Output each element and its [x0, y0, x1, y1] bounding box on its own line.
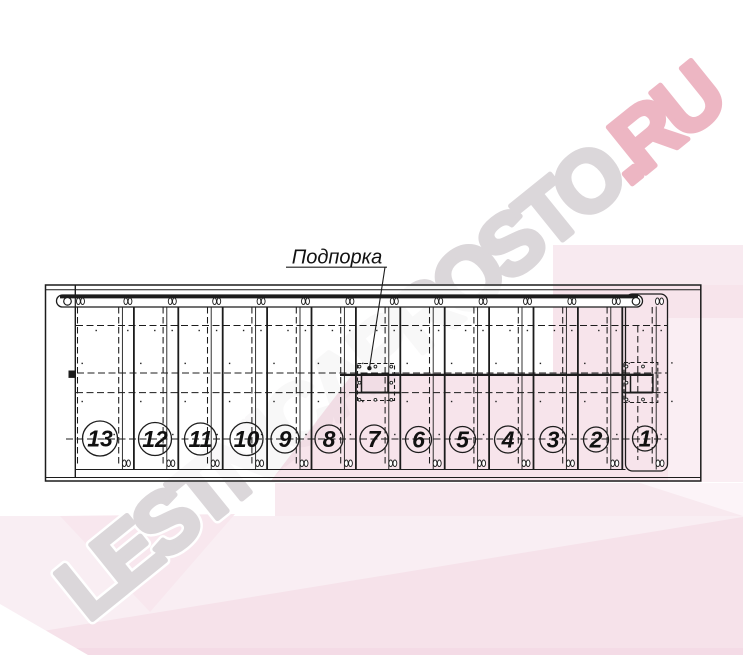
svg-text:9: 9: [279, 426, 292, 452]
svg-text:10: 10: [234, 426, 260, 452]
svg-text:2: 2: [589, 427, 603, 453]
svg-text:3: 3: [547, 427, 560, 453]
svg-text:Подпорка: Подпорка: [292, 247, 383, 269]
svg-text:7: 7: [368, 426, 382, 452]
svg-text:12: 12: [142, 426, 168, 452]
svg-text:6: 6: [412, 427, 425, 453]
svg-text:4: 4: [501, 427, 515, 453]
svg-text:8: 8: [323, 426, 336, 452]
svg-text:13: 13: [87, 426, 113, 452]
svg-text:1: 1: [639, 426, 652, 452]
svg-text:11: 11: [189, 426, 213, 452]
svg-text:5: 5: [456, 427, 470, 453]
